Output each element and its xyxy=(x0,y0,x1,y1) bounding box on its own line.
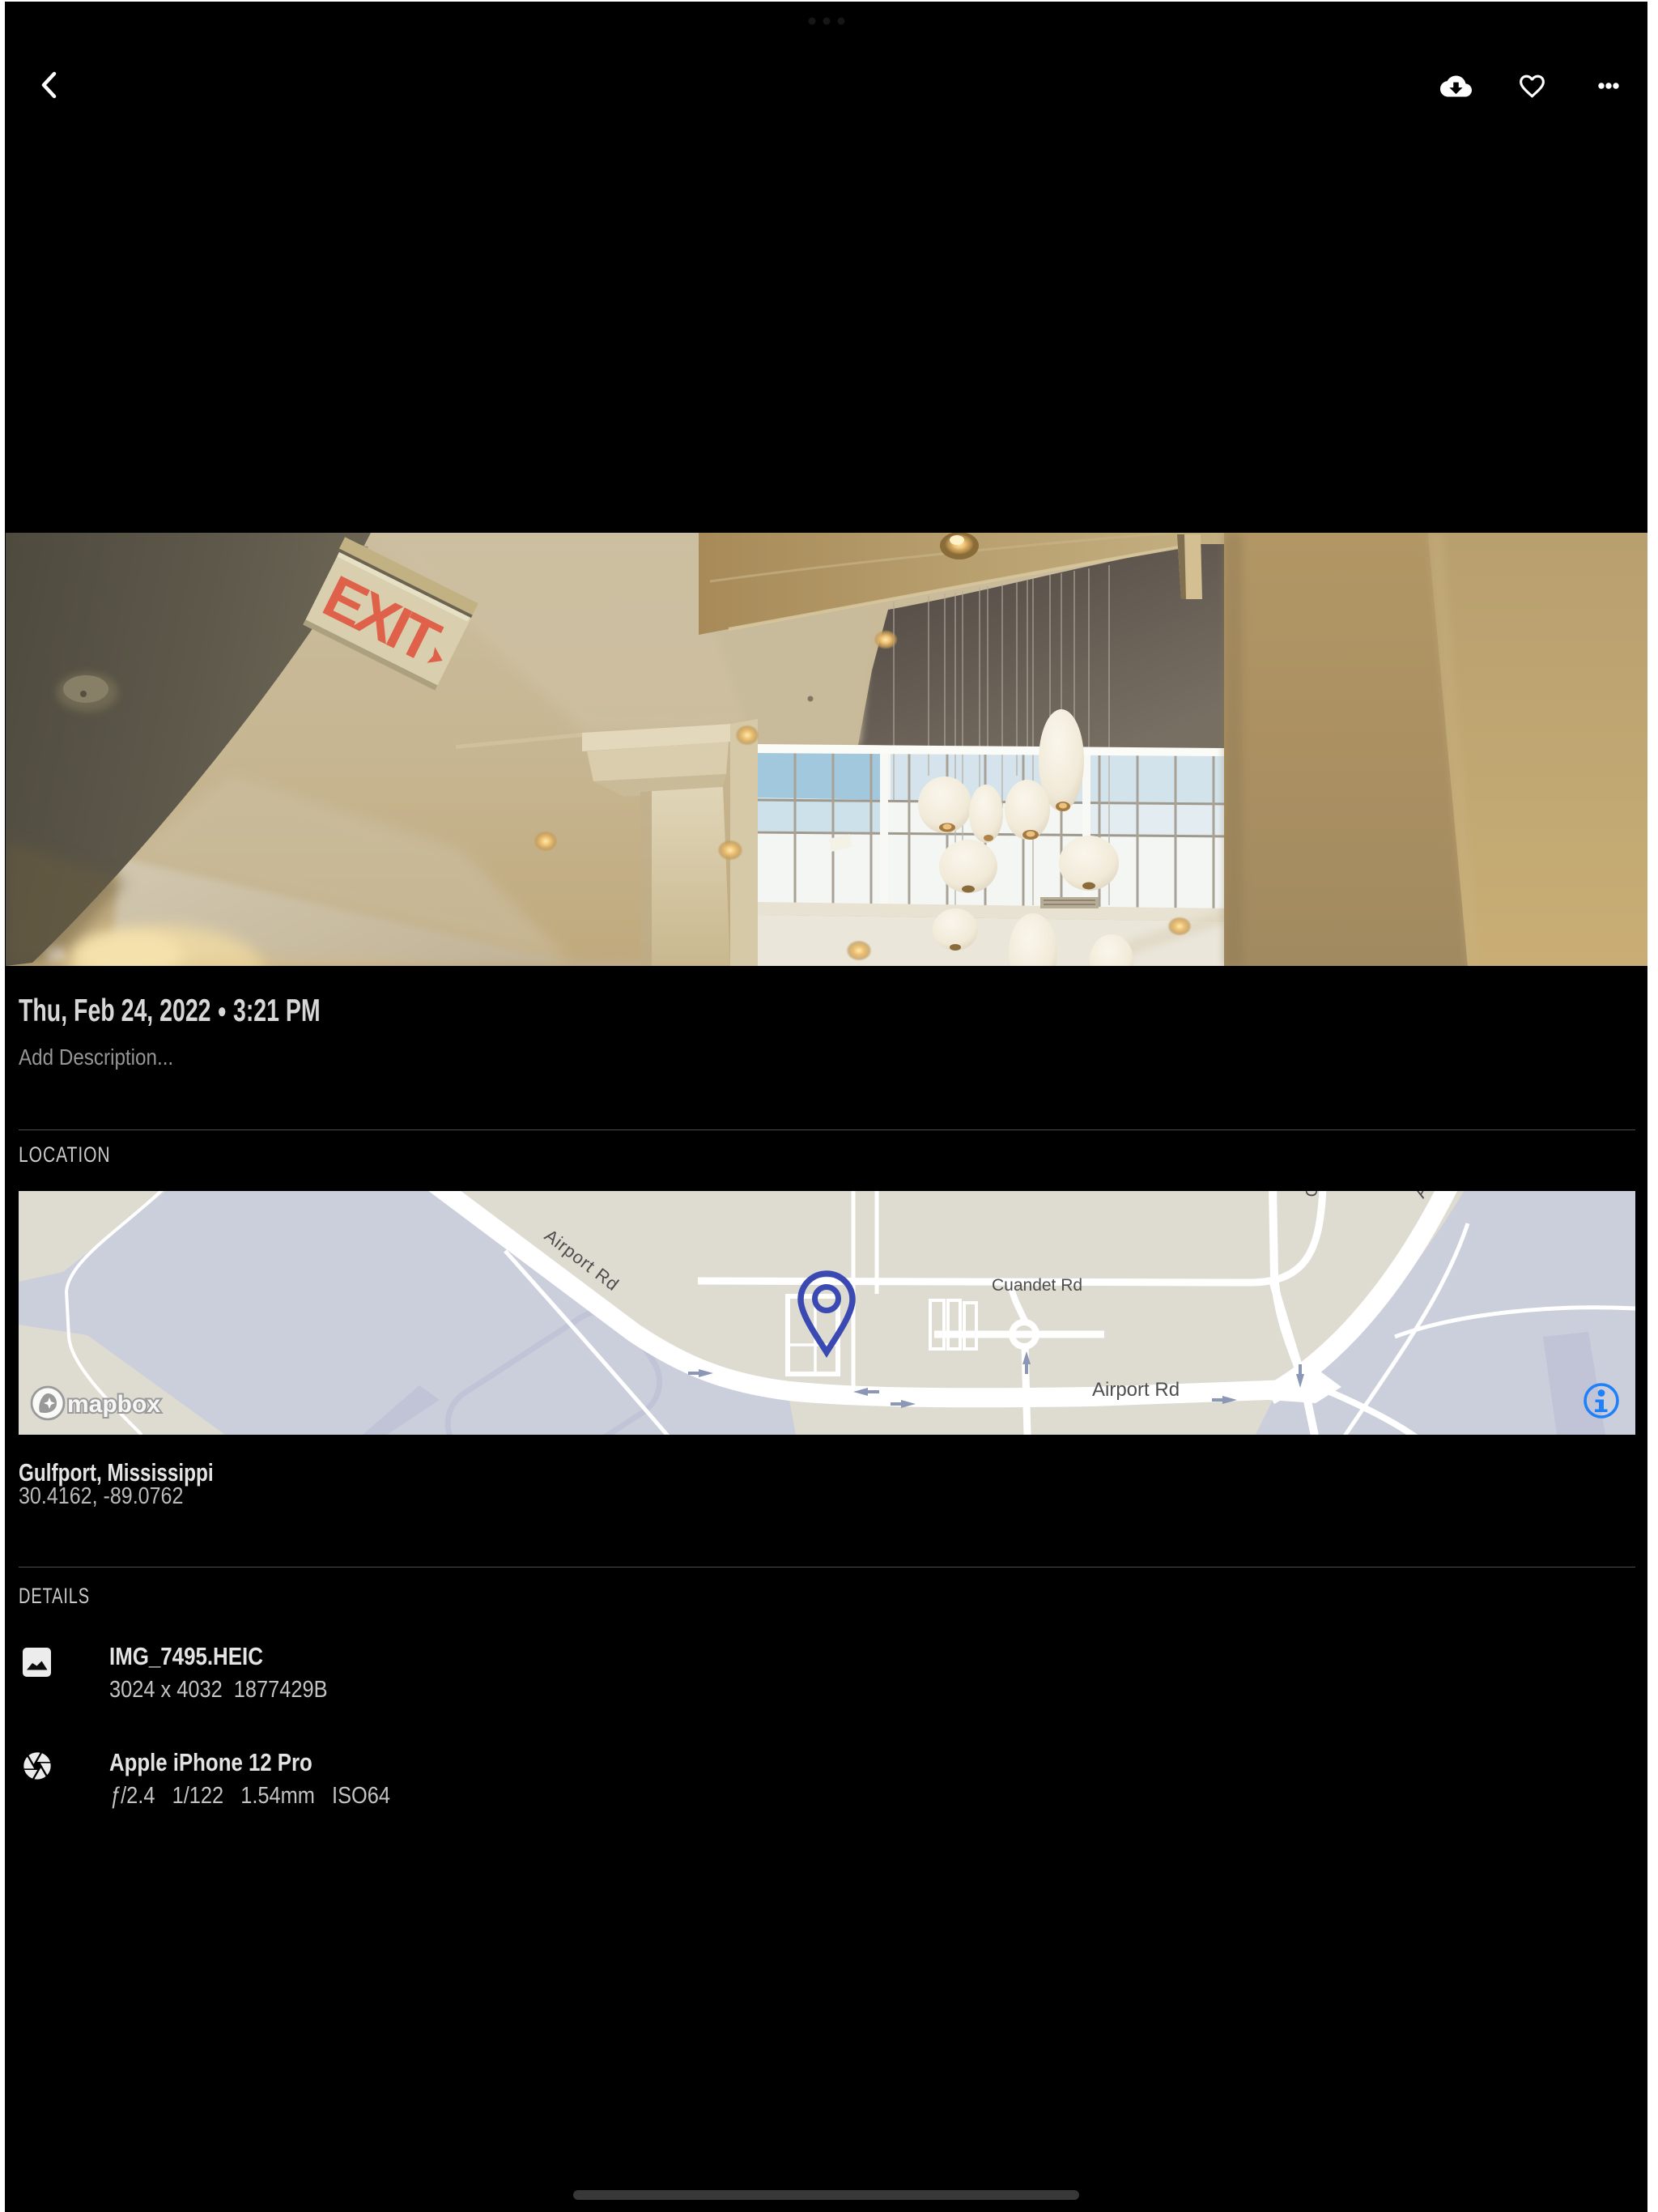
svg-text:Cuandet Rd: Cuandet Rd xyxy=(992,1276,1082,1295)
svg-text:Airport Rd: Airport Rd xyxy=(1092,1379,1180,1401)
svg-text:mapbox: mapbox xyxy=(67,1391,160,1418)
svg-text:Cu: Cu xyxy=(1303,1191,1323,1198)
